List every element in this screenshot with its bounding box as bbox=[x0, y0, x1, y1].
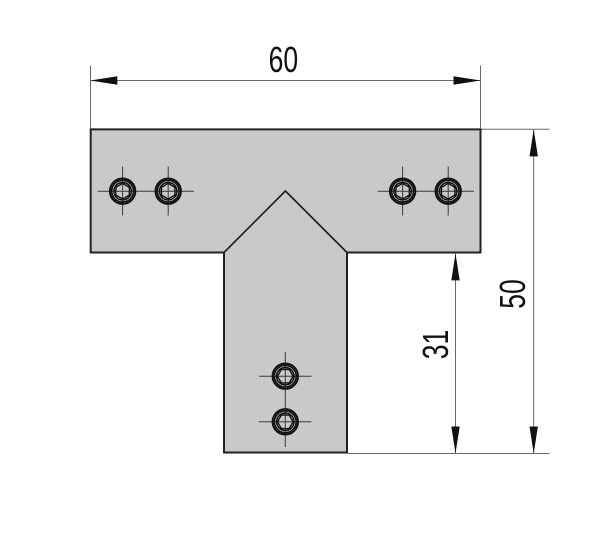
svg-text:31: 31 bbox=[415, 330, 456, 360]
svg-text:60: 60 bbox=[269, 39, 299, 80]
svg-text:50: 50 bbox=[492, 279, 533, 309]
